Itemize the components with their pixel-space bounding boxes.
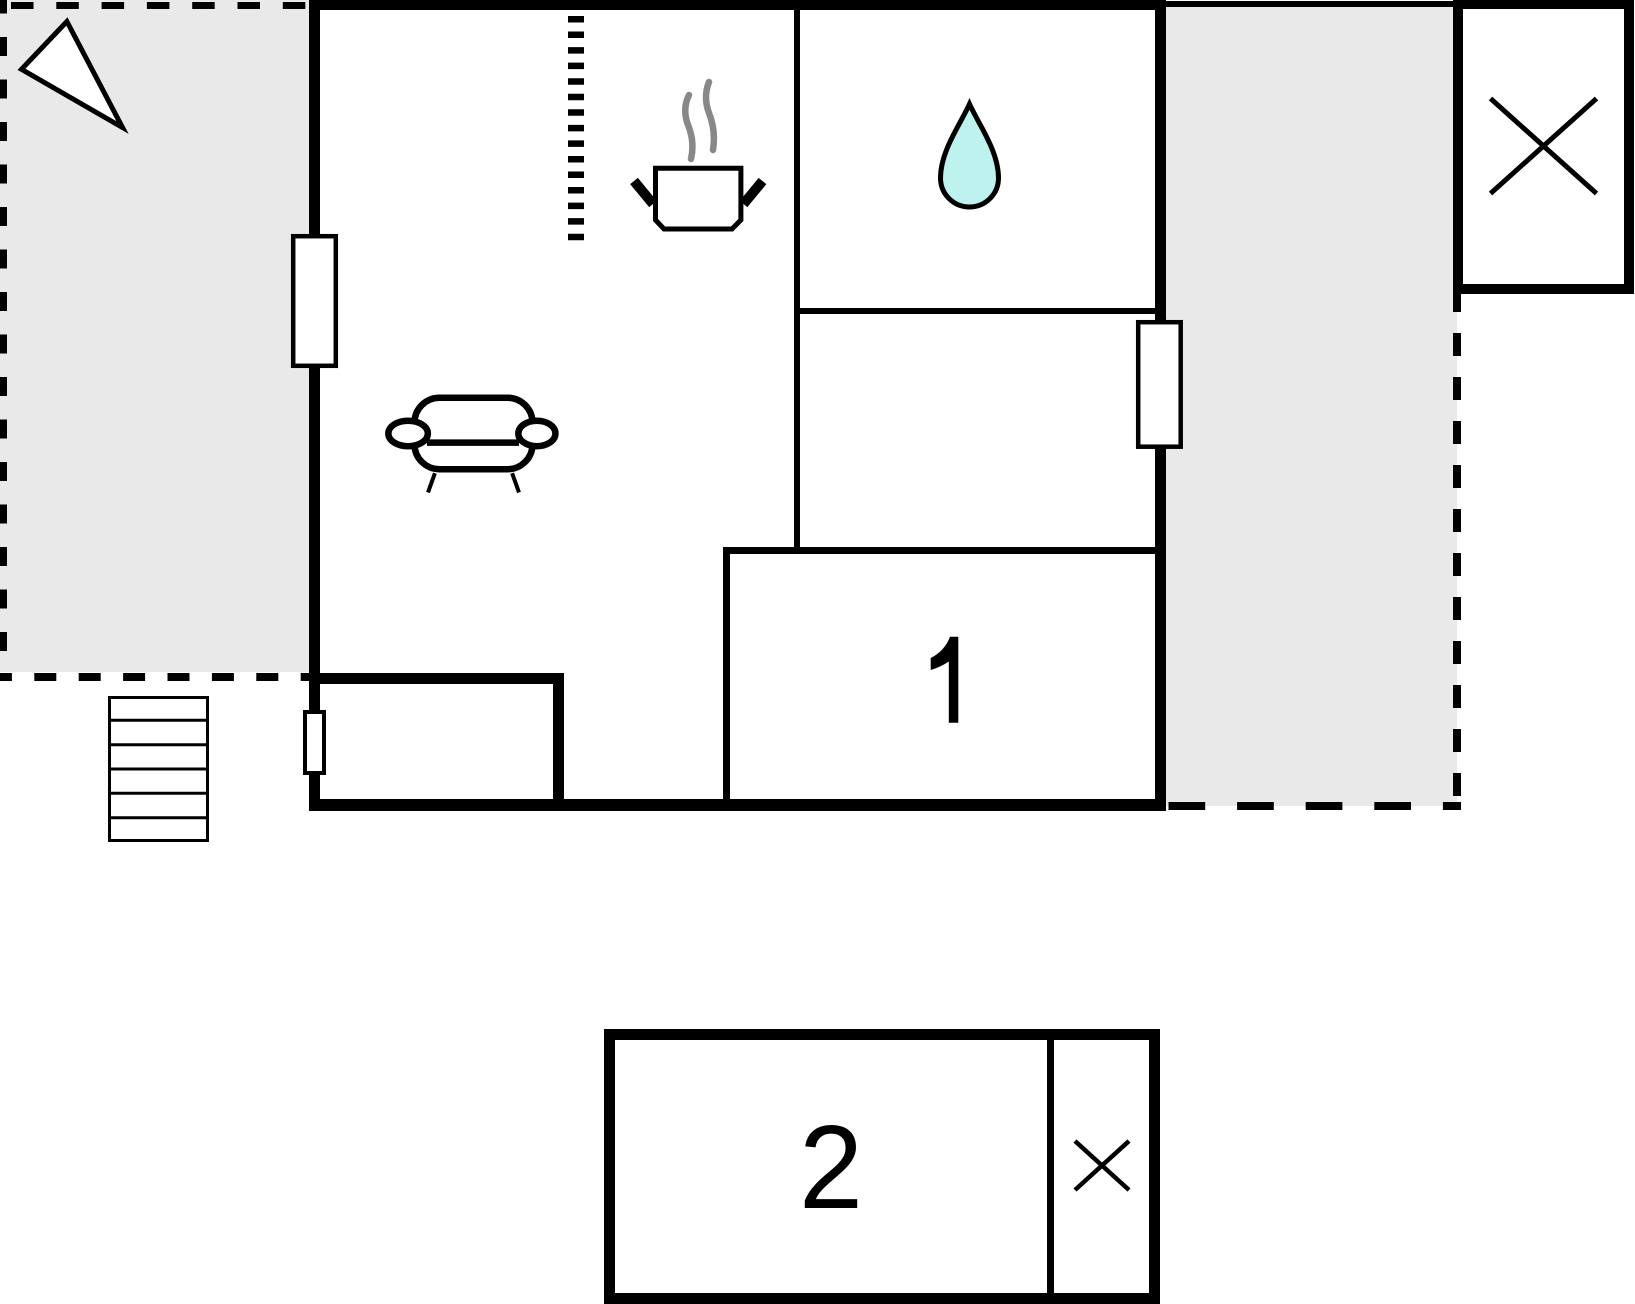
svg-text:2: 2 <box>799 1101 863 1234</box>
